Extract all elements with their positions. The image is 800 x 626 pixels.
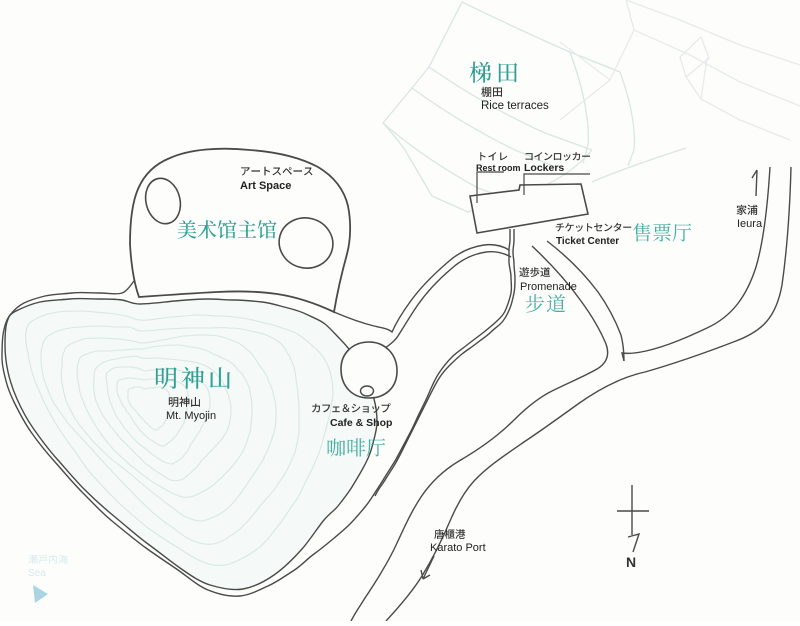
svg-text:Ticket Center: Ticket Center <box>556 236 619 247</box>
svg-text:Promenade: Promenade <box>520 281 577 293</box>
svg-text:Rest room: Rest room <box>476 163 521 173</box>
svg-text:Karato Port: Karato Port <box>430 542 486 554</box>
svg-text:Sea: Sea <box>28 568 46 579</box>
svg-text:Art Space: Art Space <box>240 180 291 192</box>
svg-text:Lockers: Lockers <box>524 162 564 174</box>
svg-text:Ieura: Ieura <box>737 218 763 230</box>
svg-text:Cafe & Shop: Cafe & Shop <box>330 417 392 429</box>
svg-text:N: N <box>626 554 636 570</box>
svg-text:Rice terraces: Rice terraces <box>481 100 549 112</box>
svg-text:Mt. Myojin: Mt. Myojin <box>166 410 216 422</box>
